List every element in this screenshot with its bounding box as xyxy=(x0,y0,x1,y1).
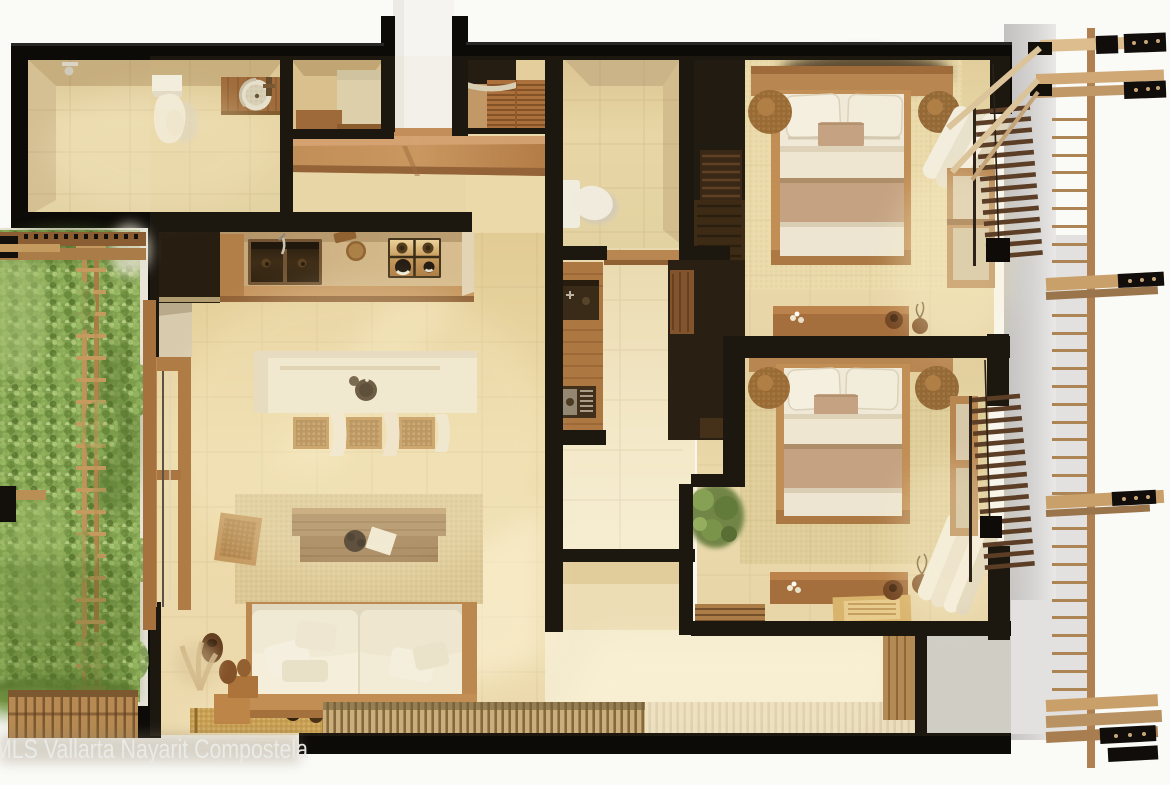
svg-text:MLS Vallarta Nayarit Compostel: MLS Vallarta Nayarit Compostela xyxy=(0,734,308,764)
